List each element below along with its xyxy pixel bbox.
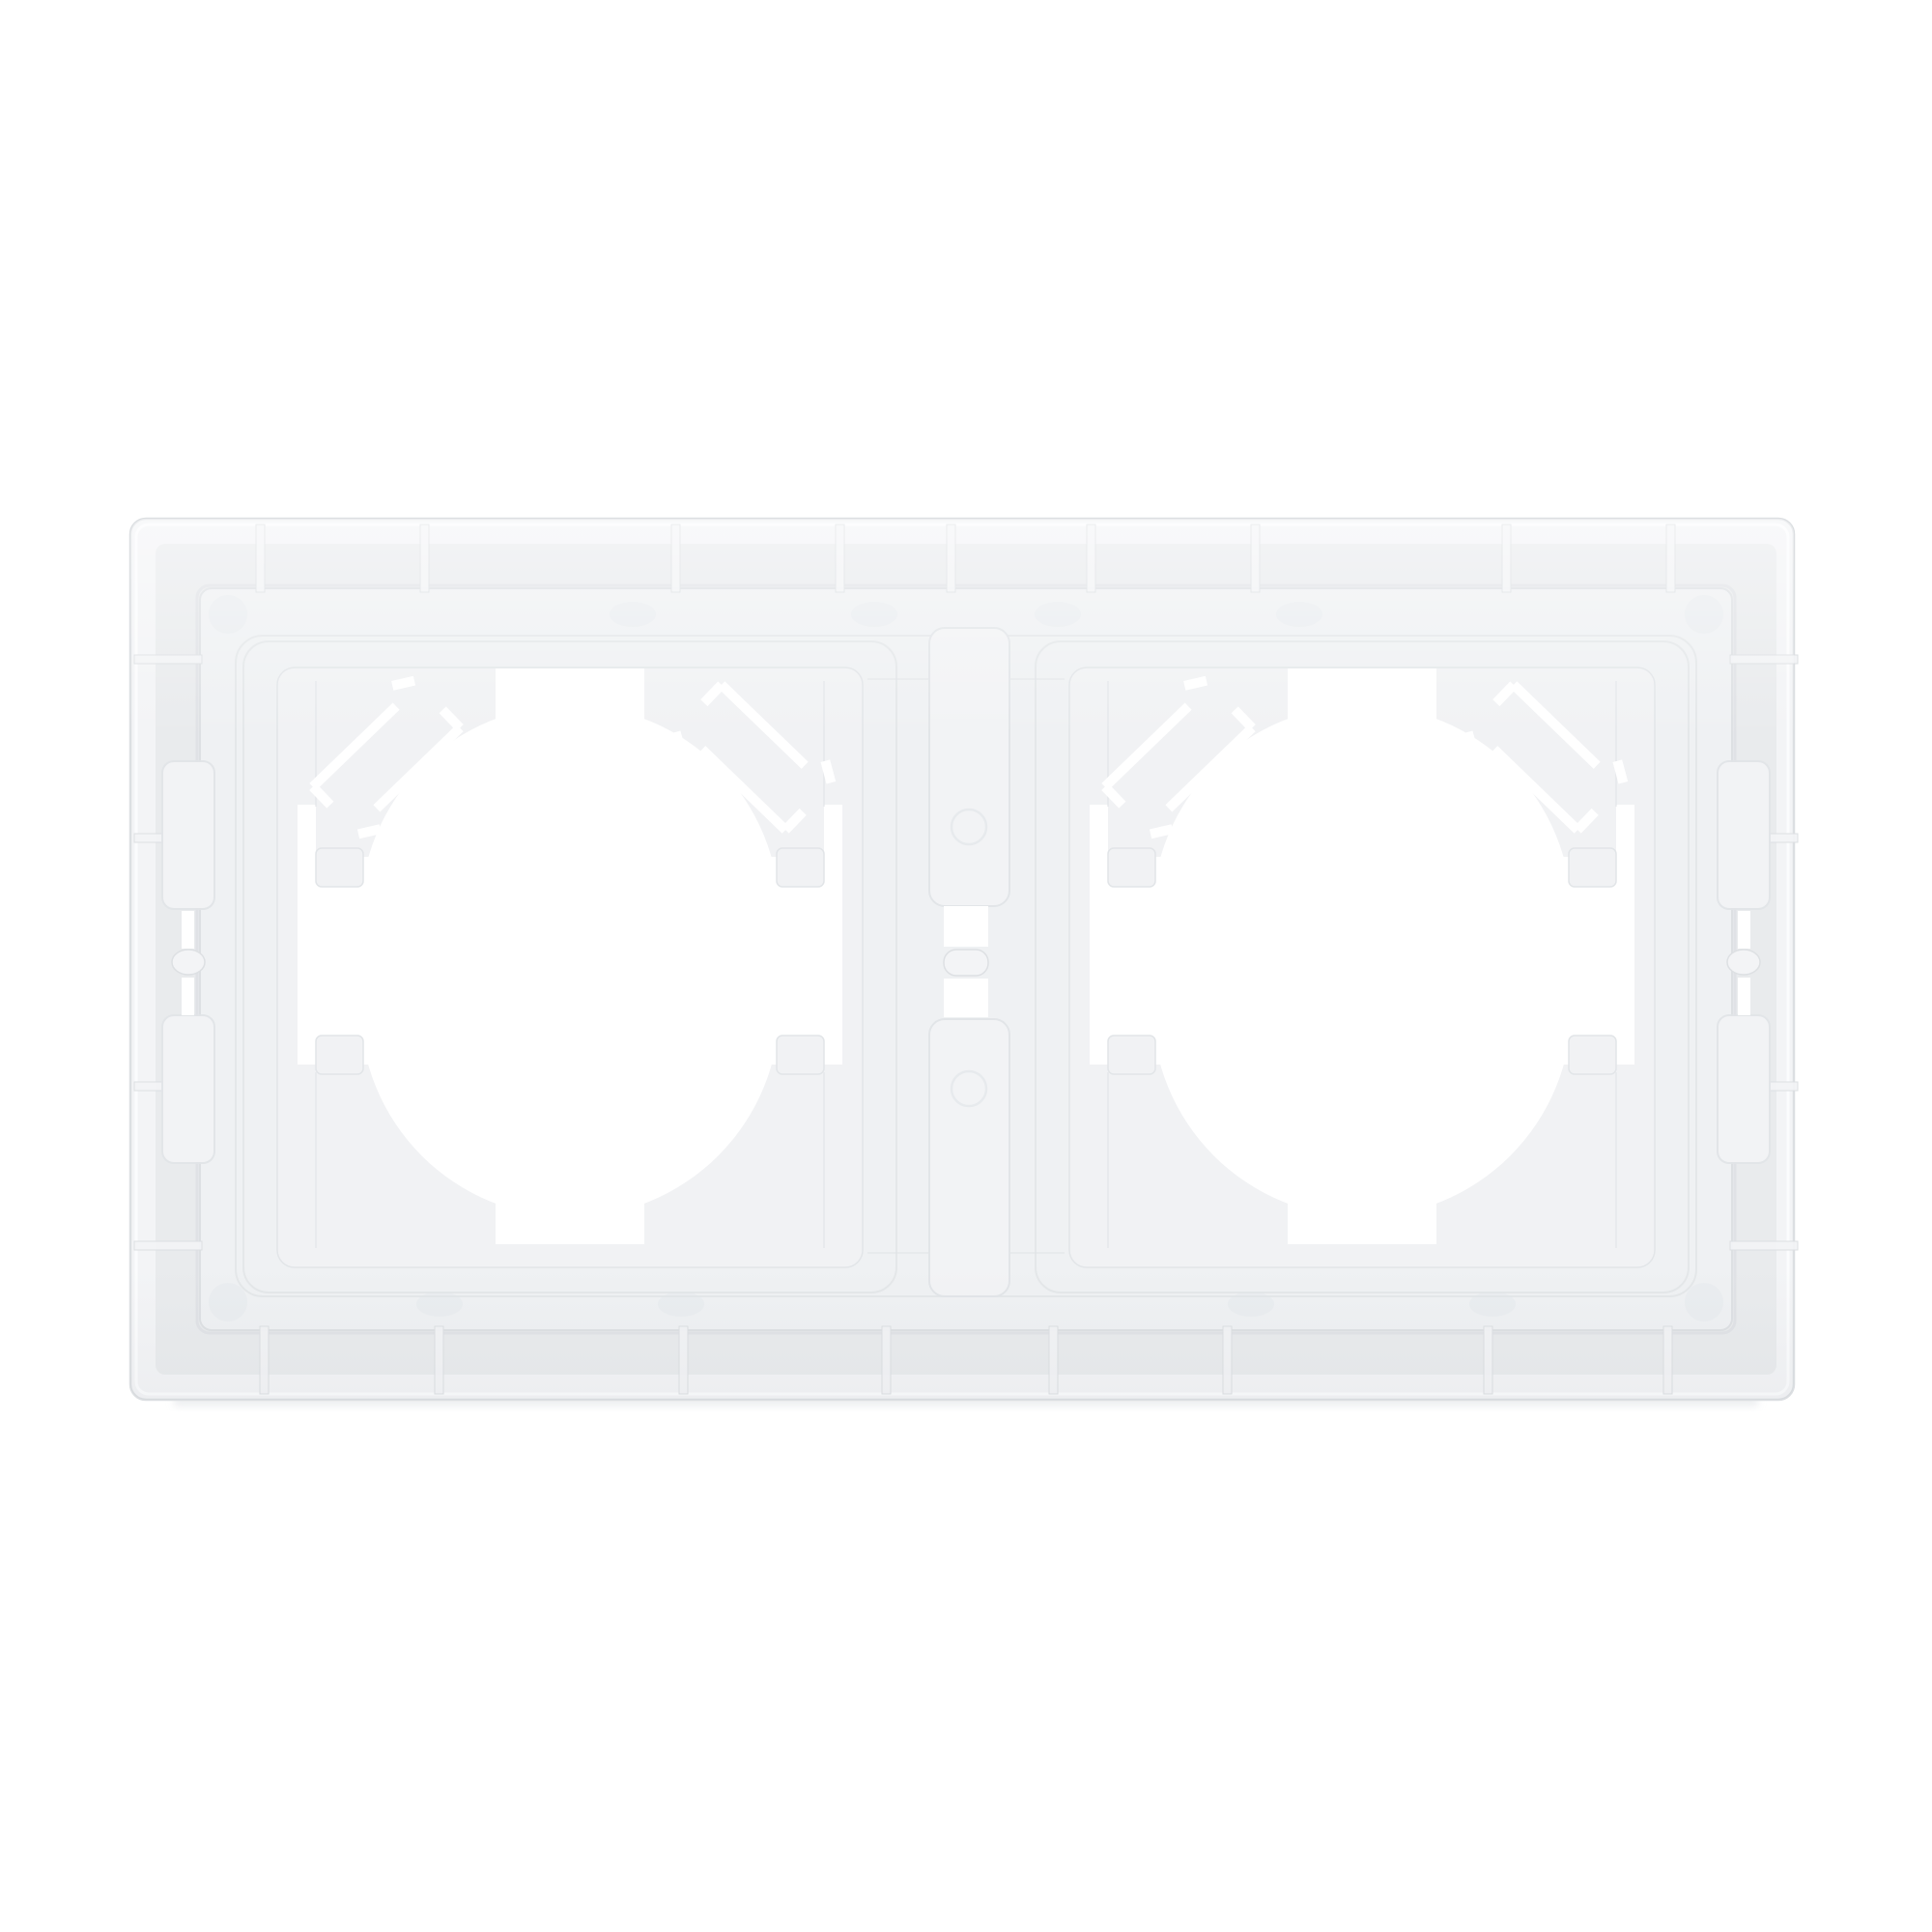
socket-frame-rear-view (0, 0, 1932, 1932)
lighting-sheen (130, 519, 1794, 1400)
product-photo (0, 0, 1932, 1932)
